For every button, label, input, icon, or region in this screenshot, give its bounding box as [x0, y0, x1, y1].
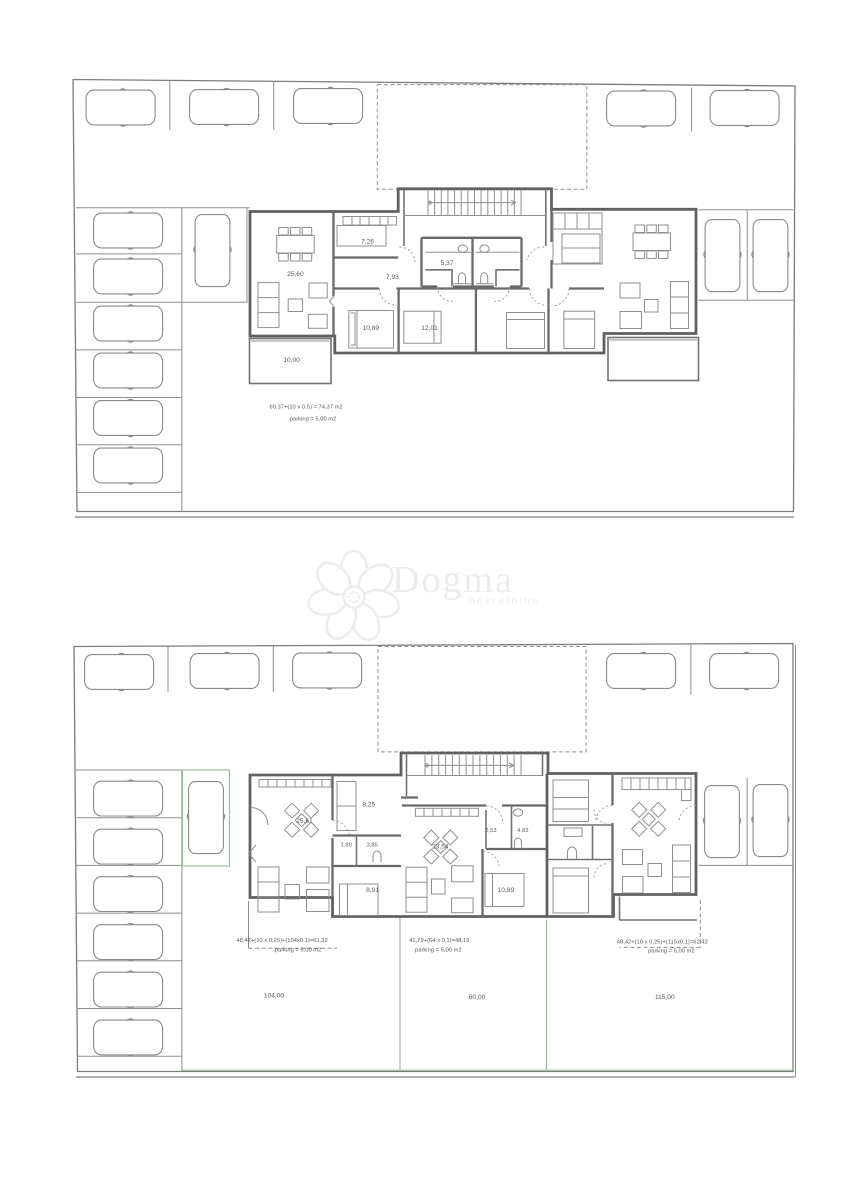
svg-text:10,89: 10,89 [363, 325, 380, 332]
svg-text:25,61: 25,61 [296, 818, 313, 825]
svg-text:5,37: 5,37 [441, 260, 454, 267]
svg-text:nekretnine: nekretnine [469, 595, 540, 607]
svg-text:104,00: 104,00 [264, 993, 285, 1000]
svg-text:7,26: 7,26 [361, 239, 374, 246]
svg-text:1,80: 1,80 [341, 843, 352, 849]
svg-text:23,54: 23,54 [432, 844, 449, 851]
svg-text:48,42+(10 x 0,25)+(104x0,1)=61: 48,42+(10 x 0,25)+(104x0,1)=61,32 [236, 938, 327, 944]
svg-text:parking = 5,00 m2: parking = 5,00 m2 [275, 948, 322, 954]
svg-text:3,85: 3,85 [367, 843, 378, 849]
svg-text:4,83: 4,83 [517, 828, 528, 834]
svg-text:8,91: 8,91 [366, 887, 379, 894]
svg-text:parking = 5,00 m2: parking = 5,00 m2 [415, 948, 462, 954]
svg-text:8,25: 8,25 [362, 802, 375, 809]
svg-text:2,53: 2,53 [485, 828, 496, 834]
svg-text:10,89: 10,89 [498, 887, 515, 894]
svg-text:69,37+(10 x 0,5) = 74,37 m2: 69,37+(10 x 0,5) = 74,37 m2 [270, 405, 343, 411]
svg-text:7,93: 7,93 [386, 274, 399, 281]
svg-text:115,00: 115,00 [655, 994, 675, 1001]
svg-text:48,42+(10 x 0,25)+(115x0,1)=62: 48,42+(10 x 0,25)+(115x0,1)=62,42 [617, 940, 708, 946]
svg-text:60,00: 60,00 [469, 994, 486, 1001]
svg-text:41,79+(64 x 0,1)=48,19: 41,79+(64 x 0,1)=48,19 [409, 938, 469, 944]
svg-text:12,01: 12,01 [421, 325, 438, 332]
svg-text:10,00: 10,00 [283, 357, 300, 364]
svg-text:parking = 5,00 m2: parking = 5,00 m2 [648, 949, 695, 955]
svg-text:parking = 5,00 m2: parking = 5,00 m2 [290, 417, 337, 423]
svg-text:25,60: 25,60 [287, 271, 304, 278]
